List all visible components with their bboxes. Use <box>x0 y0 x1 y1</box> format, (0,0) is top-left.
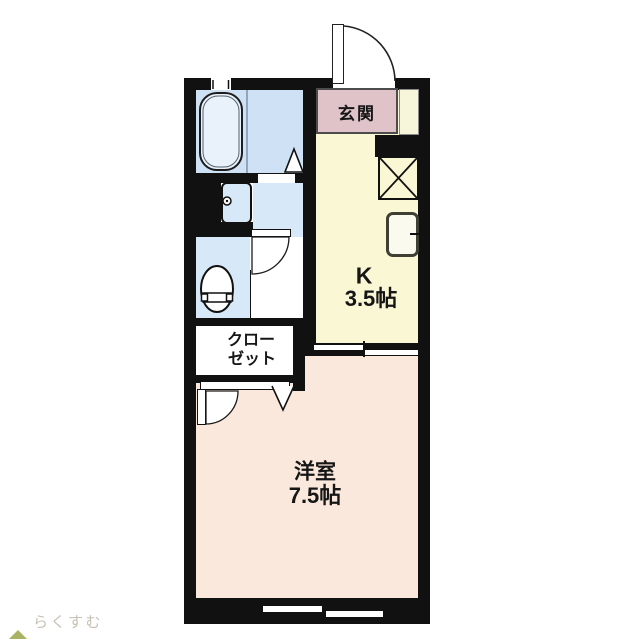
house-logo-icon <box>9 613 27 631</box>
kitchen-sink <box>386 212 419 257</box>
closet-door <box>200 381 290 390</box>
kitchen-name-label: K <box>356 265 373 288</box>
wall-center-column <box>303 90 316 356</box>
wall-basin-bottom <box>196 222 253 237</box>
sliding-door-panel-left <box>313 344 366 351</box>
room-size-label: 7.5帖 <box>289 485 342 507</box>
wall-kitchen-corner <box>375 135 430 157</box>
room-door-leaf <box>197 389 206 425</box>
toilet-door-swing-area <box>251 237 303 318</box>
genkan-label: 玄関 <box>338 106 376 123</box>
shoe-cabinet <box>399 89 419 135</box>
bathtub <box>199 92 243 171</box>
sliding-door-panel-right <box>364 349 419 356</box>
closet-label-line1: クロー <box>227 333 275 349</box>
window-pane-left <box>262 605 323 613</box>
small-window-top <box>211 78 231 90</box>
toilet-door-leaf <box>251 229 291 237</box>
refrigerator-space <box>378 156 419 200</box>
wall-top-left <box>184 78 333 90</box>
entrance-door-arc <box>344 26 395 81</box>
floorplan-canvas: 玄関 K 3.5帖 クロー ゼット 洋室 7.5帖 らくすむ <box>0 0 640 640</box>
logo-text: らくすむ <box>33 611 103 632</box>
bathroom-divider <box>246 90 248 175</box>
rakusumu-logo: らくすむ <box>9 611 103 632</box>
wall-left <box>184 78 196 624</box>
room-name-label: 洋室 <box>294 462 336 483</box>
bathroom-door-opening <box>258 174 295 183</box>
kitchen-size-label: 3.5帖 <box>345 288 398 310</box>
toilet-room-floor <box>196 235 250 318</box>
entrance-door-leaf <box>332 24 344 84</box>
closet-label-line2: ゼット <box>228 352 276 368</box>
wall-closet-top <box>196 318 305 326</box>
window-pane-right <box>325 610 384 618</box>
washbasin <box>221 182 252 224</box>
